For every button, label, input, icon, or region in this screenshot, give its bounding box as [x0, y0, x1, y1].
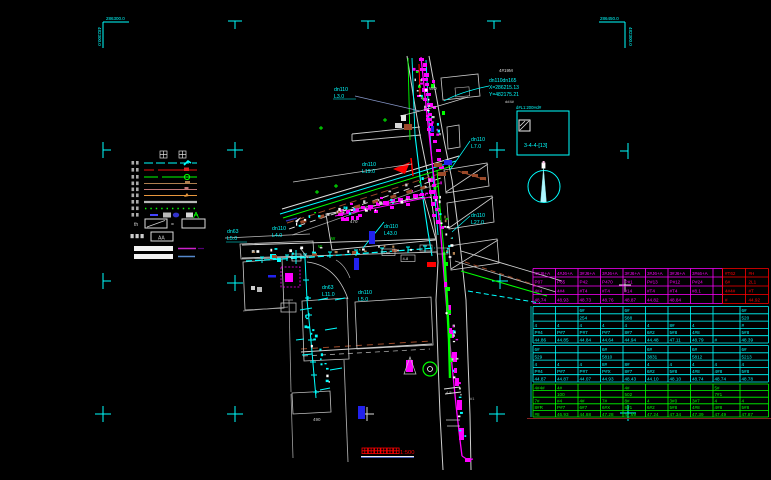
svg-text:4: 4 [692, 362, 695, 367]
svg-text:4#8: 4#8 [715, 405, 723, 410]
svg-text:529: 529 [535, 355, 543, 360]
svg-text:4#8: 4#8 [715, 369, 723, 374]
svg-text:3#J6+A: 3#J6+A [602, 271, 619, 276]
svg-text:48.76: 48.76 [602, 298, 614, 303]
svg-text:L27.0: L27.0 [471, 220, 484, 226]
svg-text:P#12: P#12 [670, 280, 681, 285]
svg-text:6#: 6# [602, 347, 608, 352]
svg-text:4#4: 4#4 [557, 289, 565, 294]
svg-text:8#7: 8#7 [625, 369, 633, 374]
svg-text:6#: 6# [625, 308, 631, 313]
svg-text:4#J6+A: 4#J6+A [557, 271, 574, 276]
svg-text:dn110dn165: dn110dn165 [489, 78, 517, 84]
svg-text:#1: #1 [470, 396, 475, 401]
svg-text:5812: 5812 [692, 355, 703, 360]
svg-text:44.64: 44.64 [602, 338, 614, 343]
svg-text:6#2: 6#2 [647, 369, 655, 374]
svg-text:4#8: 4#8 [692, 405, 700, 410]
svg-text:6#7: 6#7 [580, 405, 588, 410]
svg-text:44.86: 44.86 [535, 338, 547, 343]
svg-text:#H: #H [749, 271, 755, 276]
svg-text:4: 4 [647, 362, 650, 367]
svg-text:dn63: dn63 [322, 285, 334, 291]
svg-text:48.74: 48.74 [535, 298, 547, 303]
svg-text:44.88: 44.88 [580, 412, 592, 417]
svg-text:3-4-4-[13]: 3-4-4-[13] [524, 143, 548, 149]
svg-text:48.43: 48.43 [625, 377, 637, 382]
svg-text:P07: P07 [535, 280, 544, 285]
svg-text:3#J6+A: 3#J6+A [647, 271, 664, 276]
svg-text:4: 4 [625, 323, 628, 328]
svg-text:4: 4 [647, 399, 650, 404]
svg-text:4: 4 [670, 362, 673, 367]
svg-text:P#X: P#X [602, 369, 611, 374]
svg-text:6#: 6# [742, 347, 748, 352]
svg-text:6#: 6# [725, 280, 731, 285]
svg-text:490: 490 [313, 417, 321, 422]
svg-text:P#7: P#7 [580, 369, 589, 374]
svg-text:dn110: dn110 [334, 87, 348, 93]
svg-text:482300.0: 482300.0 [97, 27, 102, 46]
svg-text:47.87: 47.87 [742, 412, 754, 417]
svg-text:P#4: P#4 [535, 369, 544, 374]
svg-text:6#: 6# [580, 308, 586, 313]
svg-text:#: # [725, 298, 728, 303]
svg-text:4: 4 [742, 399, 745, 404]
svg-text:6#2: 6#2 [647, 405, 655, 410]
svg-text:#8: #8 [535, 412, 541, 417]
svg-text:4#: 4# [625, 385, 631, 390]
svg-text:8#: 8# [625, 399, 631, 404]
svg-text:P65: P65 [557, 280, 566, 285]
svg-text:P42: P42 [580, 280, 589, 285]
svg-text:3#J6+A: 3#J6+A [625, 271, 642, 276]
svg-text:44.10: 44.10 [647, 377, 659, 382]
svg-text:L19.0: L19.0 [362, 169, 375, 175]
svg-text:Y=482175.21: Y=482175.21 [489, 92, 519, 98]
svg-text:44.93: 44.93 [602, 377, 614, 382]
svg-text:L11.0: L11.0 [322, 292, 335, 298]
svg-text:4: 4 [557, 362, 560, 367]
svg-text:#4: #4 [557, 399, 563, 404]
svg-text:P#24: P#24 [692, 280, 703, 285]
svg-text:4#: 4# [557, 385, 563, 390]
svg-text:4: 4 [742, 362, 745, 367]
svg-text:286450.0: 286450.0 [600, 16, 619, 21]
svg-text:48.78: 48.78 [742, 377, 754, 382]
svg-text:4#19M: 4#19M [499, 68, 513, 73]
svg-text:8#: 8# [670, 323, 676, 328]
svg-text:47.49: 47.49 [715, 412, 727, 417]
svg-text:3#J6+A: 3#J6+A [580, 271, 597, 276]
svg-text:3831: 3831 [647, 355, 658, 360]
svg-text:520: 520 [742, 316, 750, 321]
svg-text:6#: 6# [535, 347, 541, 352]
svg-text:3#s6+A: 3#s6+A [692, 271, 709, 276]
svg-text:482300.0: 482300.0 [628, 27, 633, 46]
svg-text:5#8: 5#8 [742, 330, 750, 335]
svg-text:4#4#: 4#4# [535, 385, 546, 390]
svg-text:2L1: 2L1 [749, 280, 757, 285]
svg-text:d#L1:200Hd#: d#L1:200Hd# [516, 105, 542, 110]
svg-text:254: 254 [580, 316, 588, 321]
svg-text:3#J6+A: 3#J6+A [670, 271, 687, 276]
svg-text:44.85: 44.85 [557, 338, 569, 343]
svg-text:5#8: 5#8 [742, 369, 750, 374]
svg-text:4: 4 [647, 323, 650, 328]
svg-text:47.69: 47.69 [625, 412, 637, 417]
svg-text:44.84: 44.84 [580, 338, 592, 343]
svg-text:502: 502 [625, 392, 633, 397]
svg-text:4: 4 [535, 362, 538, 367]
svg-text:6#: 6# [742, 308, 748, 313]
svg-text:48.39: 48.39 [742, 338, 754, 343]
svg-text:44.94: 44.94 [625, 338, 637, 343]
svg-text:P#7: P#7 [602, 330, 611, 335]
svg-text:#T: #T [749, 289, 755, 294]
svg-text:P#4: P#4 [535, 330, 544, 335]
svg-text:286300.0: 286300.0 [106, 16, 125, 21]
svg-text:4: 4 [715, 399, 718, 404]
svg-text:5#8: 5#8 [670, 369, 678, 374]
svg-text:d#4#: d#4# [505, 99, 515, 104]
svg-text:46.93: 46.93 [557, 412, 569, 417]
svg-text:1:500: 1:500 [400, 450, 415, 456]
svg-text:44.92: 44.92 [749, 298, 761, 303]
svg-text:P#7: P#7 [557, 369, 566, 374]
svg-text:5#: 5# [715, 385, 721, 390]
svg-text:dn63: dn63 [227, 229, 239, 235]
svg-text:4#4: 4#4 [535, 289, 543, 294]
svg-text:4: 4 [602, 323, 605, 328]
svg-text:#8.1: #8.1 [692, 289, 701, 294]
svg-text:P#1: P#1 [625, 280, 634, 285]
svg-text:dn110: dn110 [384, 224, 398, 230]
svg-text:dn110: dn110 [362, 162, 376, 168]
svg-text:4#4#: 4#4# [725, 289, 736, 294]
svg-text:#T4: #T4 [647, 289, 655, 294]
svg-text:P470: P470 [602, 280, 613, 285]
svg-text:48.10: 48.10 [670, 377, 682, 382]
svg-text:dn110: dn110 [272, 226, 286, 232]
svg-text:5#8: 5#8 [670, 330, 678, 335]
svg-text:th: th [134, 222, 138, 228]
svg-text:4: 4 [692, 323, 695, 328]
svg-text:3#7: 3#7 [692, 399, 700, 404]
svg-text:6#2: 6#2 [647, 330, 655, 335]
svg-text:AA: AA [158, 236, 165, 242]
svg-text:48.74: 48.74 [692, 377, 704, 382]
svg-text:P#7: P#7 [580, 330, 589, 335]
svg-text:L4.0: L4.0 [272, 233, 282, 239]
svg-text:5213: 5213 [742, 355, 753, 360]
svg-text:dn110: dn110 [358, 290, 372, 296]
svg-text:5#8: 5#8 [742, 405, 750, 410]
svg-text:48.73: 48.73 [580, 298, 592, 303]
svg-text:4#8: 4#8 [692, 369, 700, 374]
svg-text:4#J6+A: 4#J6+A [535, 271, 552, 276]
svg-text:7#1: 7#1 [715, 392, 723, 397]
svg-text:L7.0: L7.0 [471, 144, 481, 150]
svg-text:588: 588 [625, 316, 633, 321]
svg-text:8#: 8# [625, 362, 631, 367]
svg-text:L43.0: L43.0 [384, 231, 397, 237]
svg-text:4: 4 [580, 323, 583, 328]
svg-text:dn110: dn110 [471, 137, 485, 143]
svg-text:4#8: 4#8 [692, 330, 700, 335]
svg-text:#T62: #T62 [725, 271, 736, 276]
svg-text:100: 100 [557, 392, 565, 397]
svg-text:WO: WO [429, 86, 437, 91]
svg-text:3#0: 3#0 [670, 399, 678, 404]
svg-text:P#7: P#7 [557, 405, 566, 410]
svg-text:4: 4 [715, 362, 718, 367]
svg-text:8#1: 8#1 [625, 405, 633, 410]
svg-text:6#: 6# [647, 347, 653, 352]
svg-text:#T4: #T4 [670, 289, 678, 294]
svg-text:48.87: 48.87 [625, 298, 637, 303]
svg-text:7#: 7# [602, 399, 608, 404]
svg-text:44.87: 44.87 [557, 377, 569, 382]
svg-text:4: 4 [535, 323, 538, 328]
svg-text:5#8: 5#8 [670, 405, 678, 410]
svg-text:4#: 4# [580, 399, 586, 404]
svg-text:4-8: 4-8 [403, 256, 410, 261]
svg-text:4: 4 [557, 323, 560, 328]
svg-text:P#13: P#13 [647, 280, 658, 285]
svg-text:L5.0: L5.0 [227, 236, 237, 242]
svg-text:L5.0: L5.0 [358, 297, 368, 303]
svg-text:#T4: #T4 [602, 289, 610, 294]
svg-text:4.5: 4.5 [446, 390, 452, 395]
svg-text:44.82: 44.82 [647, 298, 659, 303]
svg-text:#T4: #T4 [580, 289, 588, 294]
svg-text:8#R: 8#R [535, 405, 544, 410]
svg-text:4: 4 [580, 362, 583, 367]
svg-text:8#7: 8#7 [625, 330, 633, 335]
svg-text:47.28: 47.28 [602, 412, 614, 417]
svg-text:48.79: 48.79 [692, 338, 704, 343]
svg-text:48.74: 48.74 [715, 377, 727, 382]
svg-text:6#X: 6#X [602, 405, 610, 410]
svg-text:P#7: P#7 [557, 330, 566, 335]
svg-text:#14: #14 [625, 289, 633, 294]
svg-text:48.84: 48.84 [670, 298, 682, 303]
svg-text:#: # [715, 338, 718, 343]
svg-text:X=286215.13: X=286215.13 [489, 85, 519, 91]
svg-text:dn110: dn110 [471, 213, 485, 219]
svg-text:44.07: 44.07 [580, 377, 592, 382]
svg-text:47.24: 47.24 [647, 412, 659, 417]
svg-text:47.34: 47.34 [670, 412, 682, 417]
svg-text:5810: 5810 [602, 355, 613, 360]
svg-text:8#: 8# [602, 362, 608, 367]
svg-text:47.39: 47.39 [692, 412, 704, 417]
svg-text:6#: 6# [692, 347, 698, 352]
svg-text:47.11: 47.11 [670, 338, 682, 343]
svg-text:44.87: 44.87 [535, 377, 547, 382]
svg-text:48.93: 48.93 [557, 298, 569, 303]
svg-text:7#: 7# [535, 399, 541, 404]
svg-text:#: # [742, 323, 745, 328]
svg-text:Ln#: Ln# [384, 250, 391, 255]
svg-text:=: = [171, 222, 174, 228]
svg-text:44.48: 44.48 [647, 338, 659, 343]
